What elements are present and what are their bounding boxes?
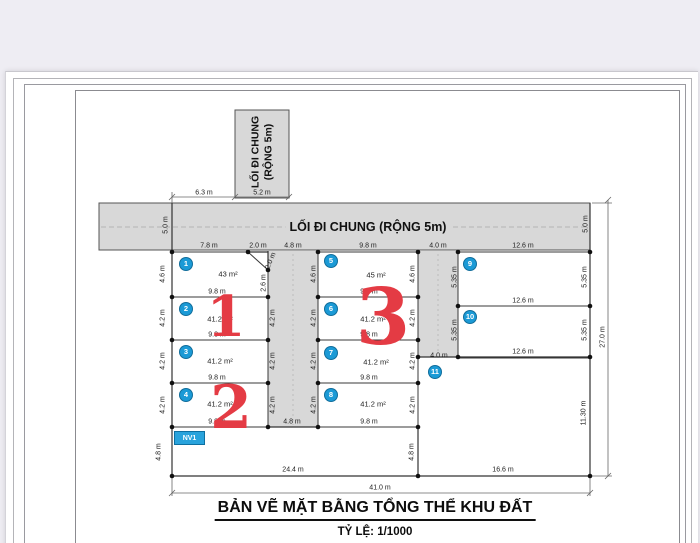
dim-label: 4.2 m — [410, 352, 417, 370]
plot-area-label: 41.2 m² — [207, 357, 232, 365]
dim-label: 7.8 m — [200, 243, 218, 250]
plot-badge-7: 7 — [324, 346, 338, 360]
dim-label: 4.2 m — [160, 309, 167, 327]
dim-label: 24.4 m — [282, 467, 303, 474]
dim-label: 4.8 m — [283, 419, 301, 426]
zone-number-3: 3 — [356, 279, 410, 357]
dim-label: 4.6 m — [311, 265, 318, 283]
site-plan-drawing — [0, 0, 700, 543]
dim-label: 41.0 m — [369, 485, 390, 492]
dim-label: 9.8 m — [360, 419, 378, 426]
dim-label: 16.6 m — [492, 467, 513, 474]
drawing-scale: TỶ LỆ: 1/1000 — [338, 526, 413, 538]
dim-label: 27.0 m — [600, 326, 607, 347]
dim-label: 4.2 m — [410, 309, 417, 327]
dim-label: 4.2 m — [311, 396, 318, 414]
dim-label: 4.2 m — [311, 352, 318, 370]
plot-badge-9: 9 — [463, 257, 477, 271]
dim-label: 4.2 m — [160, 352, 167, 370]
dim-label: 9.8 m — [360, 375, 378, 382]
dim-label: 4.2 m — [410, 396, 417, 414]
dim-label: 2.0 m — [249, 243, 267, 250]
plot-area-label: 41.2 m² — [360, 400, 385, 408]
dim-label: 12.6 m — [512, 243, 533, 250]
dim-label: 5.2 m — [253, 190, 271, 197]
dim-label: 12.6 m — [512, 349, 533, 356]
plot-badge-3: 3 — [179, 345, 193, 359]
dim-label: 5.35 m — [452, 266, 459, 287]
plot-badge-2: 2 — [179, 302, 193, 316]
vertical-road-label: LỐI ĐI CHUNG (RỘNG 5m) — [249, 108, 274, 196]
dim-label: 4.2 m — [270, 309, 277, 327]
dim-label: 5.0 m — [163, 216, 170, 234]
dim-label: 4.0 m — [429, 243, 447, 250]
dim-label: 4.2 m — [270, 396, 277, 414]
dim-label: 12.6 m — [512, 298, 533, 305]
plot-badge-11: 11 — [428, 365, 442, 379]
dim-label: 4.6 m — [160, 265, 167, 283]
plot-badge-10: 10 — [463, 310, 477, 324]
dim-label: 4.8 m — [156, 443, 163, 461]
dim-label: 4.6 m — [410, 265, 417, 283]
dim-label: 4.0 m — [430, 353, 448, 360]
dim-label: 9.8 m — [359, 243, 377, 250]
site-plan-screen: LỐI ĐI CHUNG (RỘNG 5m) LỐI ĐI CHUNG (RỘN… — [0, 0, 700, 543]
plot-area-label: 43 m² — [218, 270, 237, 278]
dim-label: 4.8 m — [284, 243, 302, 250]
dim-label: 4.8 m — [409, 443, 416, 461]
dim-label: 4.2 m — [311, 309, 318, 327]
horizontal-road-label: LỐI ĐI CHUNG (RỘNG 5m) — [286, 220, 451, 234]
dim-label: 11.30 m — [581, 401, 588, 426]
zone-number-1: 1 — [207, 289, 246, 345]
plot-badge-8: 8 — [324, 388, 338, 402]
plot-badge-6: 6 — [324, 302, 338, 316]
dim-label: 2.6 m — [261, 274, 268, 292]
plot-badge-1: 1 — [179, 257, 193, 271]
nv1-tag: NV1 — [174, 431, 205, 445]
zone-number-2: 2 — [210, 378, 252, 438]
dim-label: 4.2 m — [160, 396, 167, 414]
dim-label: 5.35 m — [582, 319, 589, 340]
dim-label: 5.35 m — [452, 319, 459, 340]
plot-badge-5: 5 — [324, 254, 338, 268]
dim-label: 6.3 m — [195, 190, 213, 197]
plot-badge-4: 4 — [179, 388, 193, 402]
dim-label: 5.35 m — [582, 266, 589, 287]
drawing-title: BẢN VẼ MẶT BẰNG TỔNG THỂ KHU ĐẤT — [215, 499, 536, 521]
dim-label: 4.2 m — [270, 352, 277, 370]
dim-label: 5.0 m — [583, 215, 590, 233]
